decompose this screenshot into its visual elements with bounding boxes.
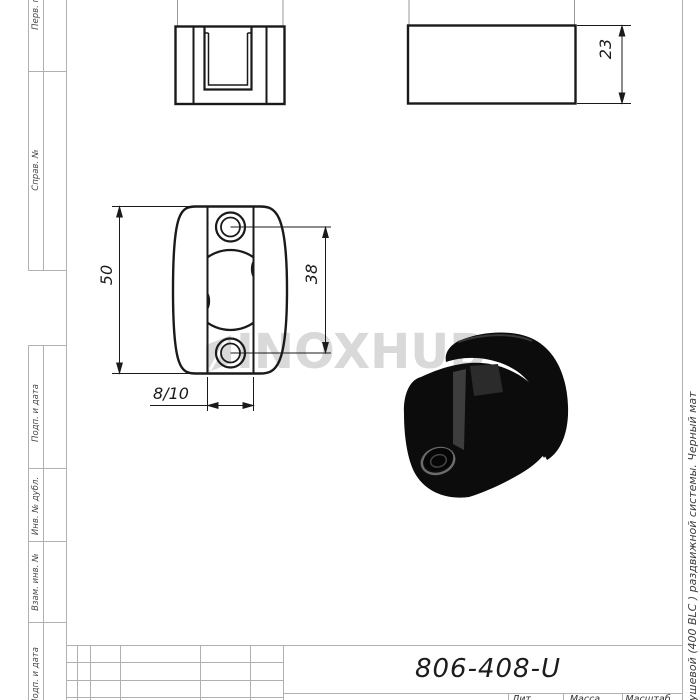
dimension-38: 38 <box>303 244 321 304</box>
margin-label-podp-data-2: Подп. и дата <box>30 616 42 700</box>
front-view <box>173 207 287 374</box>
dimension-23: 23 <box>597 19 615 79</box>
drawing-sheet: INOXHUB <box>0 0 700 700</box>
title-block-header-lit: Лит. <box>503 694 543 700</box>
part-3d-render <box>404 333 568 498</box>
drawing-canvas <box>0 0 700 700</box>
margin-label-perv-primen: Перв. примен. <box>30 0 42 58</box>
dim-50-lines <box>112 207 196 374</box>
dimension-8-10: 8/10 <box>136 385 206 403</box>
side-note-text: душевой (400 BLC ) раздвижной системы. Ч… <box>686 385 700 700</box>
dimension-50: 50 <box>98 245 116 305</box>
title-block-header-scale: Масштаб <box>618 694 678 700</box>
title-block-header-mass: Масса <box>560 694 610 700</box>
side-view <box>408 26 576 104</box>
projection-lines <box>178 0 575 26</box>
sheet-frame <box>29 0 683 700</box>
designation-text: 806-408-U <box>308 654 668 684</box>
u-profile-view <box>176 27 285 105</box>
margin-label-sprav-no: Справ. № <box>30 110 42 230</box>
